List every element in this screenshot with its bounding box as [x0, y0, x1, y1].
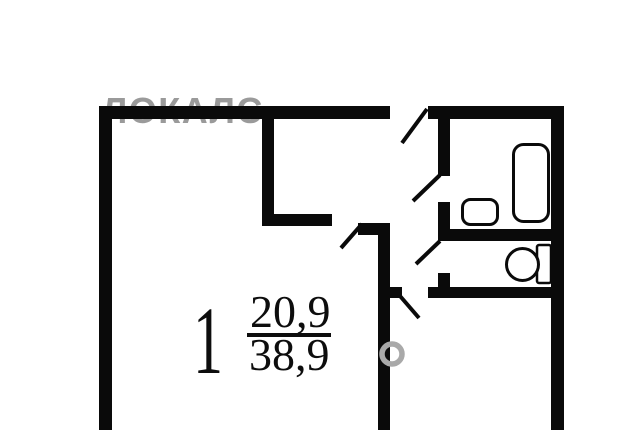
wall-toilet-bottom: [428, 287, 564, 298]
hall-door-leaf: [400, 296, 419, 318]
fixtures: [463, 145, 552, 284]
wall-hall-stub-bottom: [378, 287, 402, 298]
floorplan: ЛОКАЛС: [0, 0, 640, 430]
bathroom-door-leaf: [413, 175, 440, 201]
room-door-leaf: [341, 224, 362, 248]
sink-icon: [463, 200, 498, 225]
entrance-door-leaf: [402, 109, 427, 143]
walls: [99, 106, 564, 430]
room-annotation: 1 20,9 38,9: [193, 286, 331, 394]
wall-top-right: [428, 106, 564, 119]
bathtub-icon: [514, 145, 549, 222]
wall-top-left: [99, 106, 390, 119]
total-area-value: 38,9: [249, 329, 330, 380]
wall-kitchen-bottom: [262, 214, 332, 226]
wall-hall-vertical: [378, 223, 390, 430]
wall-bath-left-upper: [438, 119, 450, 176]
wall-right: [551, 106, 564, 430]
toilet-bowl-icon: [507, 249, 539, 281]
wall-bath-toilet-divider: [438, 229, 564, 241]
room-number: 1: [193, 287, 223, 394]
floorplan-drawing: ЛОКАЛС: [0, 0, 640, 430]
wall-kitchen-left: [262, 119, 274, 226]
door-leaves: [341, 109, 440, 318]
toilet-door-leaf: [416, 241, 440, 264]
wall-left: [99, 106, 112, 430]
